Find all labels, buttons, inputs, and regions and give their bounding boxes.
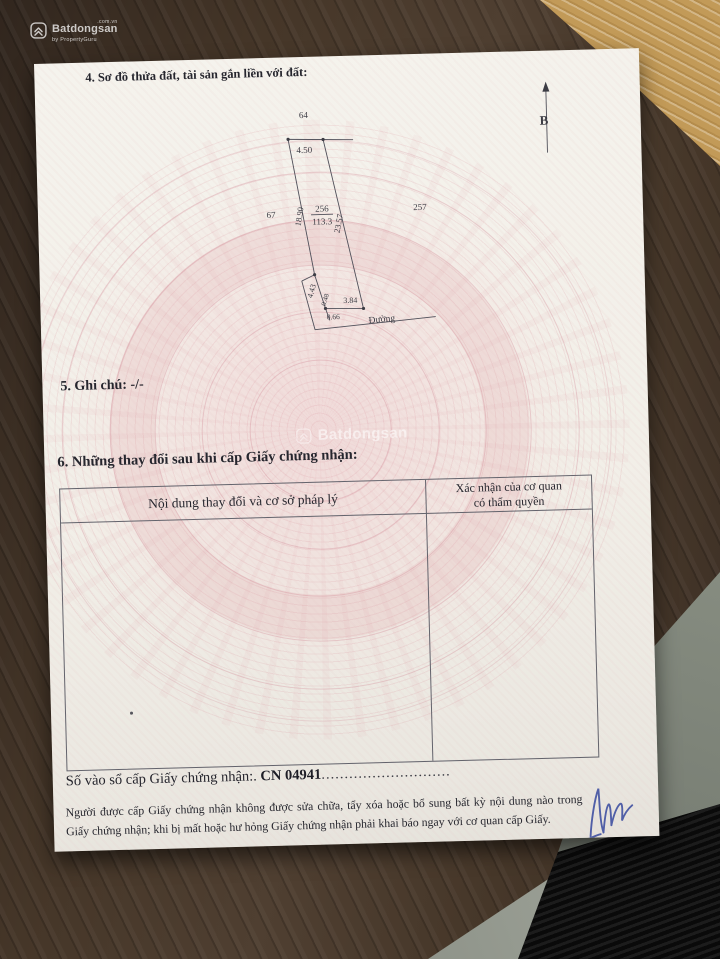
ink-speck <box>130 712 133 715</box>
table-column-divider <box>425 480 433 761</box>
logo-byline: by PropertyGuru <box>52 37 118 43</box>
logo-brand: Batdongsan <box>52 24 118 35</box>
parcel-diagram: 64 4.50 67 257 256 113.3 18.90 23.57 4.4… <box>225 80 591 339</box>
dim-small-a-label: 0.48 <box>320 292 331 306</box>
table-header-confirmation-line1: Xác nhận của cơ quan <box>455 479 562 496</box>
parcel-area-label: 113.3 <box>312 216 333 227</box>
dim-small-b-label: 0.66 <box>327 312 341 321</box>
batdongsan-watermark: Batdongsan <box>296 424 408 444</box>
dim-right-label: 23.57 <box>332 213 345 234</box>
photo-scene: .com.vn Batdongsan by PropertyGuru Batdo… <box>0 0 720 959</box>
north-label: B <box>539 113 548 128</box>
changes-table: Nội dung thay đổi và cơ sở pháp lý Xác n… <box>59 475 599 772</box>
serial-number: CN 04941 <box>260 767 321 785</box>
batdongsan-logo: .com.vn Batdongsan by PropertyGuru <box>30 18 118 43</box>
table-header-confirmation-line2: có thẩm quyền <box>474 494 545 510</box>
table-header-confirmation: Xác nhận của cơ quan có thẩm quyền <box>425 476 593 514</box>
table-header-content: Nội dung thay đổi và cơ sở pháp lý <box>60 480 426 524</box>
adjacent-parcel-left: 67 <box>266 210 276 220</box>
dim-lower-left-label: 4.43 <box>305 283 318 299</box>
road-label: Đường <box>368 314 396 327</box>
certificate-page: Batdongsan 4. Sơ đồ thửa đất, tài sản gắ… <box>34 48 659 852</box>
dim-top-label: 4.50 <box>296 145 313 155</box>
dim-bottom-label: 3.84 <box>343 296 357 305</box>
section5-title: 5. Ghi chú: -/- <box>60 377 144 395</box>
watermark-brand: Batdongsan <box>318 424 408 443</box>
adjacent-parcel-right: 257 <box>413 202 427 212</box>
house-icon <box>296 427 312 443</box>
adjacent-parcel-top: 64 <box>299 110 309 120</box>
logo-domain: .com.vn <box>97 19 117 25</box>
north-arrowhead <box>542 82 549 92</box>
dim-left-label: 18.90 <box>293 206 306 226</box>
serial-dotted-line: ............................ <box>321 763 451 782</box>
house-icon <box>30 22 47 39</box>
parcel-number-label: 256 <box>315 203 329 213</box>
